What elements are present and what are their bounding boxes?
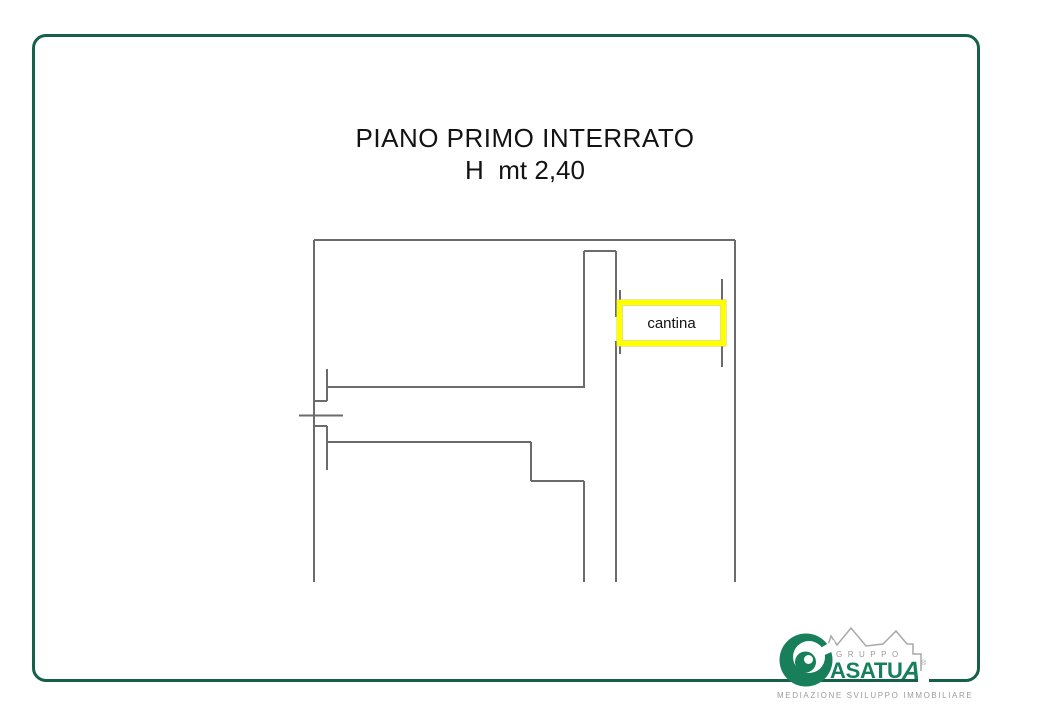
- brand-text-last-a: A: [900, 662, 922, 680]
- registered-mark: ®: [921, 660, 926, 667]
- page-root: PIANO PRIMO INTERRATO H mt 2,40 cantina …: [0, 0, 1040, 720]
- casatua-logo: [0, 0, 1040, 720]
- brand-text-main: ASATU: [830, 658, 903, 683]
- brand-text: ASATUA: [830, 661, 920, 683]
- casatua-swirl-icon: [780, 634, 837, 687]
- tagline-label: MEDIAZIONE SVILUPPO IMMOBILIARE: [777, 691, 973, 700]
